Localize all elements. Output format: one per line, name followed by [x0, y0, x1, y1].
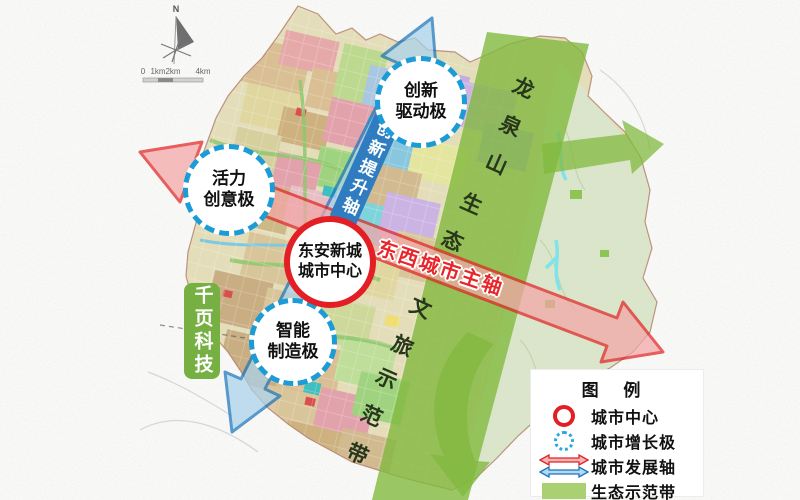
scale-bar: 0 1km 2km 4km: [141, 67, 211, 82]
pole-label-line: 创意极: [204, 190, 255, 211]
green-band-icon: [542, 483, 586, 499]
scale-label-2km: 2km: [165, 67, 180, 76]
legend-label: 城市发展轴: [591, 454, 676, 478]
legend-label: 生态示范带: [591, 479, 676, 500]
pole-label-line: 制造极: [268, 342, 319, 363]
compass-north-label: N: [173, 4, 180, 14]
pole-label-line: 创新: [404, 81, 438, 102]
scale-label-4km: 4km: [195, 67, 210, 76]
double-arrow-icon: [539, 454, 589, 478]
city-center-label-line: 东安新城: [298, 242, 362, 262]
legend-panel: 图 例 城市中心 城市增长极 城市发展轴 生态示范带: [530, 369, 704, 497]
legend-item-development-axis: 城市发展轴: [537, 454, 695, 478]
pole-label-line: 活力: [212, 169, 246, 190]
growth-pole-vitality-creative: 活力 创意极: [183, 144, 275, 236]
growth-pole-intelligent-manufacturing: 智能 制造极: [249, 298, 337, 386]
legend-title: 图 例: [537, 376, 695, 401]
city-center-marker: 东安新城 城市中心: [284, 216, 376, 308]
legend-label: 城市中心: [591, 404, 659, 428]
pole-label-line: 驱动极: [396, 102, 447, 123]
pole-label-line: 智能: [276, 321, 310, 342]
legend-item-growth-pole: 城市增长极: [537, 429, 695, 453]
legend-item-eco-belt: 生态示范带: [537, 479, 695, 500]
dashed-circle-icon: [554, 431, 574, 451]
urban-planning-map: N 0 1km 2km 4km 创新提升轴 东西城市主轴 龙 泉 山 生: [0, 0, 800, 500]
growth-pole-innovation-drive: 创新 驱动极: [375, 56, 467, 148]
legend-item-city-center: 城市中心: [537, 404, 695, 428]
city-center-label-line: 城市中心: [298, 262, 362, 282]
watermark-badge: 千页科技: [184, 283, 220, 379]
scale-label-0: 0: [141, 67, 146, 76]
scale-label-1km: 1km: [150, 67, 165, 76]
red-circle-icon: [553, 405, 575, 427]
legend-label: 城市增长极: [591, 429, 676, 453]
